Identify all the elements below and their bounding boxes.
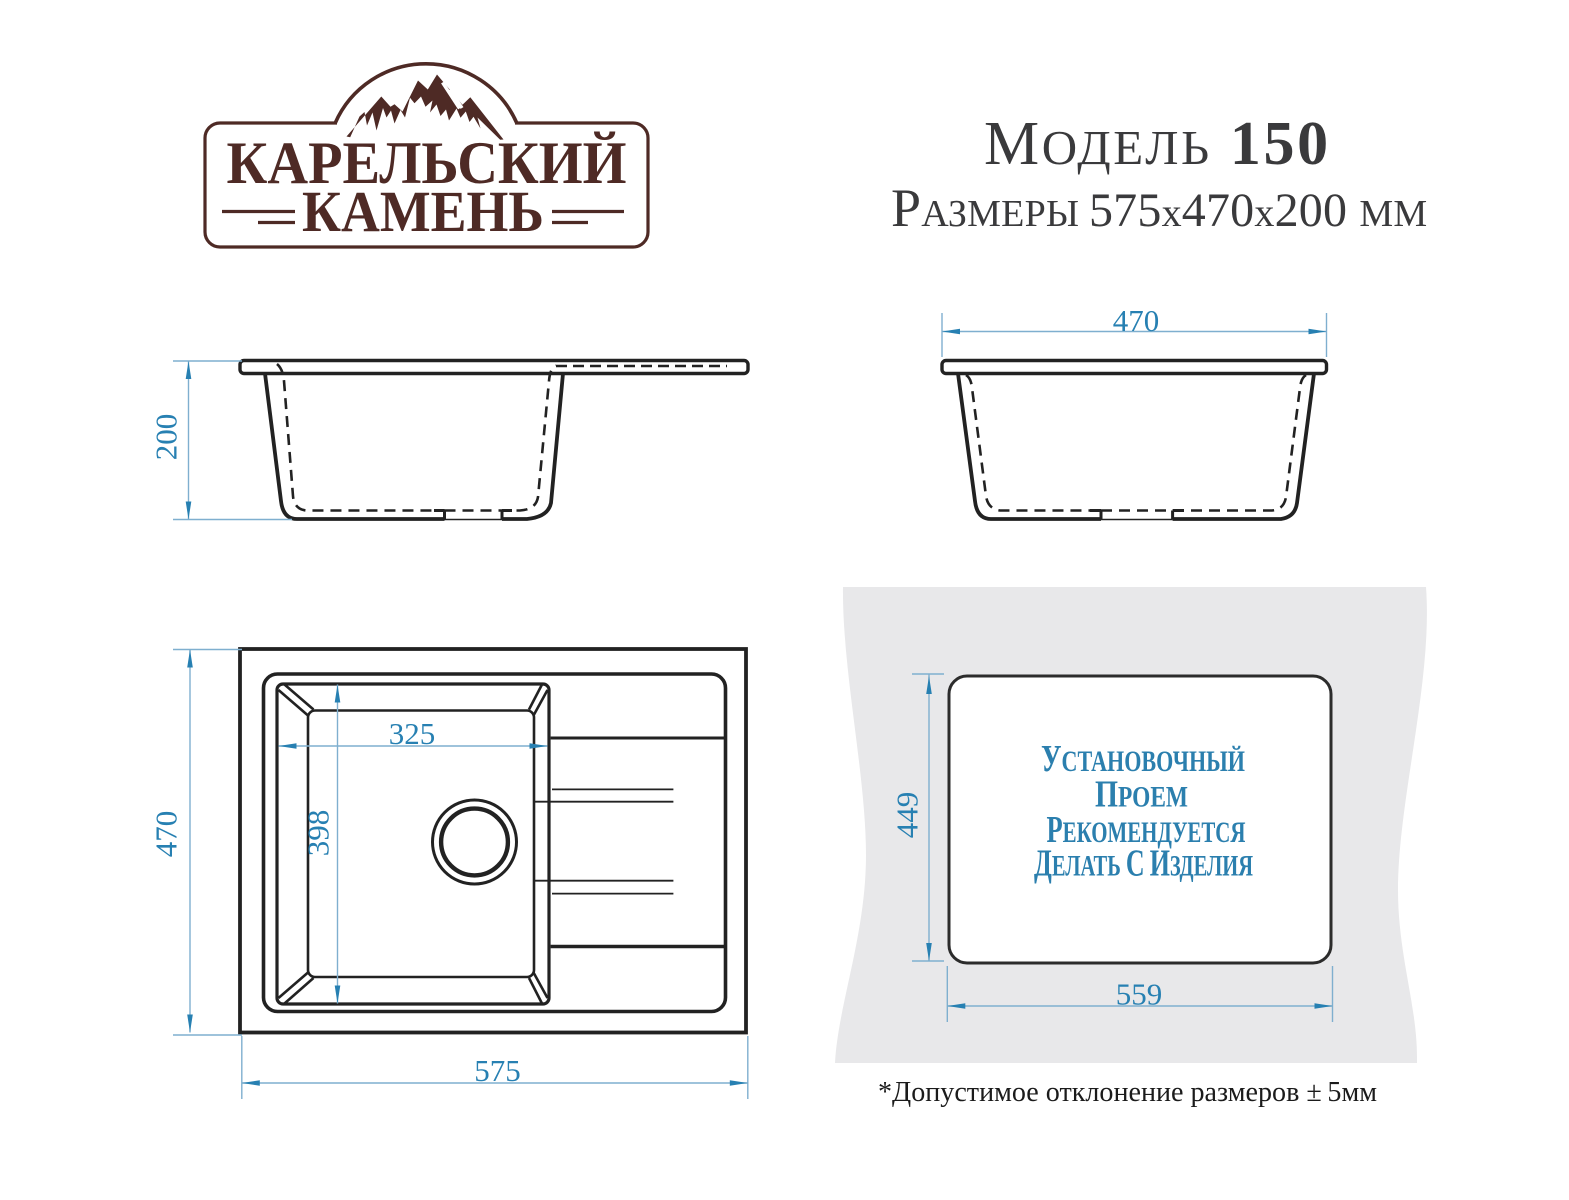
svg-text:*Допустимое отклонение размеро: *Допустимое отклонение размеров ± 5мм xyxy=(878,1076,1377,1108)
svg-text:575: 575 xyxy=(474,1053,521,1088)
svg-text:325: 325 xyxy=(389,716,436,751)
svg-text:КАМЕНЬ: КАМЕНЬ xyxy=(302,179,544,244)
svg-text:470: 470 xyxy=(1113,303,1160,338)
svg-text:УСТАНОВОЧНЫЙ: УСТАНОВОЧНЫЙ xyxy=(1041,738,1245,780)
svg-text:ПРОЕМ: ПРОЕМ xyxy=(1095,774,1188,816)
svg-text:470: 470 xyxy=(149,811,184,858)
svg-text:ДЕЛАТЬ С ИЗДЕЛИЯ: ДЕЛАТЬ С ИЗДЕЛИЯ xyxy=(1034,843,1253,885)
svg-text:449: 449 xyxy=(890,792,925,839)
svg-text:398: 398 xyxy=(301,810,336,857)
svg-text:МОДЕЛЬ 150: МОДЕЛЬ 150 xyxy=(984,110,1331,178)
svg-text:РЕКОМЕНДУЕТСЯ: РЕКОМЕНДУЕТСЯ xyxy=(1047,809,1246,851)
svg-text:200: 200 xyxy=(149,414,184,461)
svg-text:559: 559 xyxy=(1116,977,1163,1012)
